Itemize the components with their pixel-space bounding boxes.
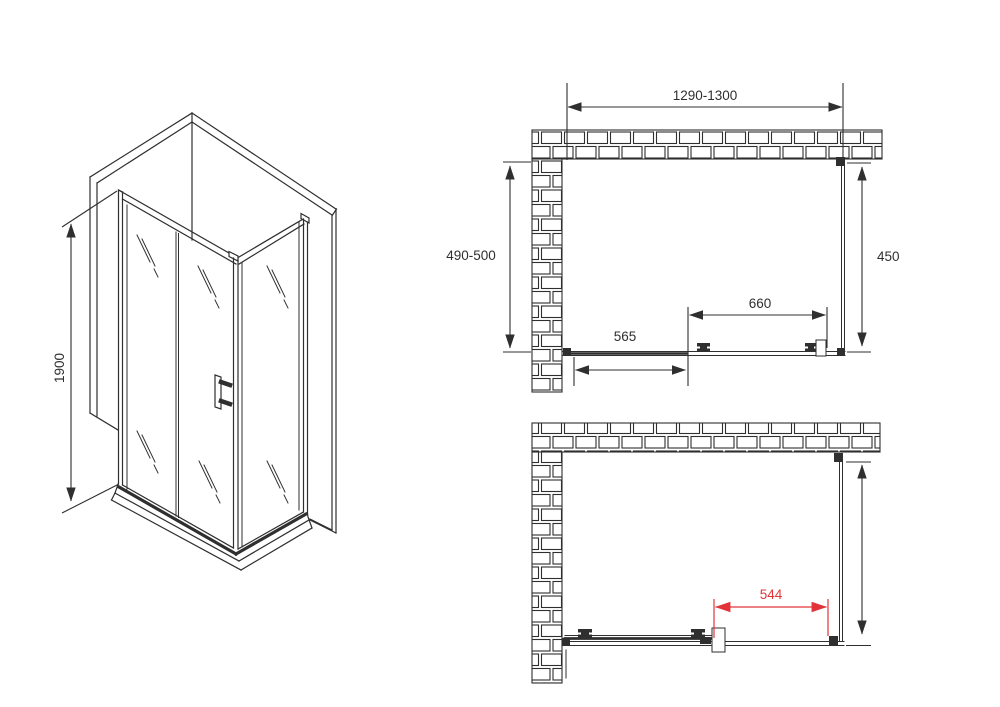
door-handle xyxy=(215,375,230,409)
side-glass-panel xyxy=(239,214,309,548)
plan-view-open: 544 xyxy=(532,423,880,683)
side-panel xyxy=(836,157,845,352)
height-dimension: 1900 xyxy=(52,191,119,513)
dimension-wall-depth: 490-500 xyxy=(446,162,531,352)
dimension-sliding-door: 660 xyxy=(688,296,827,386)
shower-enclosure xyxy=(112,190,313,570)
dimension-side-panel-unlabeled xyxy=(846,462,871,646)
glass-reflection-marks xyxy=(137,235,288,503)
sliding-door-width-label: 660 xyxy=(749,296,772,311)
wall-depth-label: 490-500 xyxy=(446,248,496,263)
technical-drawing-canvas: 1900 1290-1300 xyxy=(0,0,1000,707)
shower-enclosure-drawing: 1900 1290-1300 xyxy=(0,0,1000,707)
fixed-panel-width-label: 565 xyxy=(614,329,637,344)
door-rollers xyxy=(697,340,845,356)
dimension-fixed-panel: 565 xyxy=(574,329,686,386)
overall-width-label: 1290-1300 xyxy=(673,88,738,103)
height-dimension-label: 1900 xyxy=(52,353,67,383)
door-rollers xyxy=(578,628,838,652)
dimension-side-panel: 450 xyxy=(847,163,900,352)
door-opening-label: 544 xyxy=(760,587,783,602)
plan-view-closed: 1290-1300 490-500 450 660 565 xyxy=(446,83,899,392)
side-panel-width-label: 450 xyxy=(877,249,900,264)
isometric-view: 1900 xyxy=(52,113,337,570)
side-panel xyxy=(834,453,843,641)
base-tray xyxy=(112,483,313,570)
dimension-door-opening: 544 xyxy=(714,587,828,638)
